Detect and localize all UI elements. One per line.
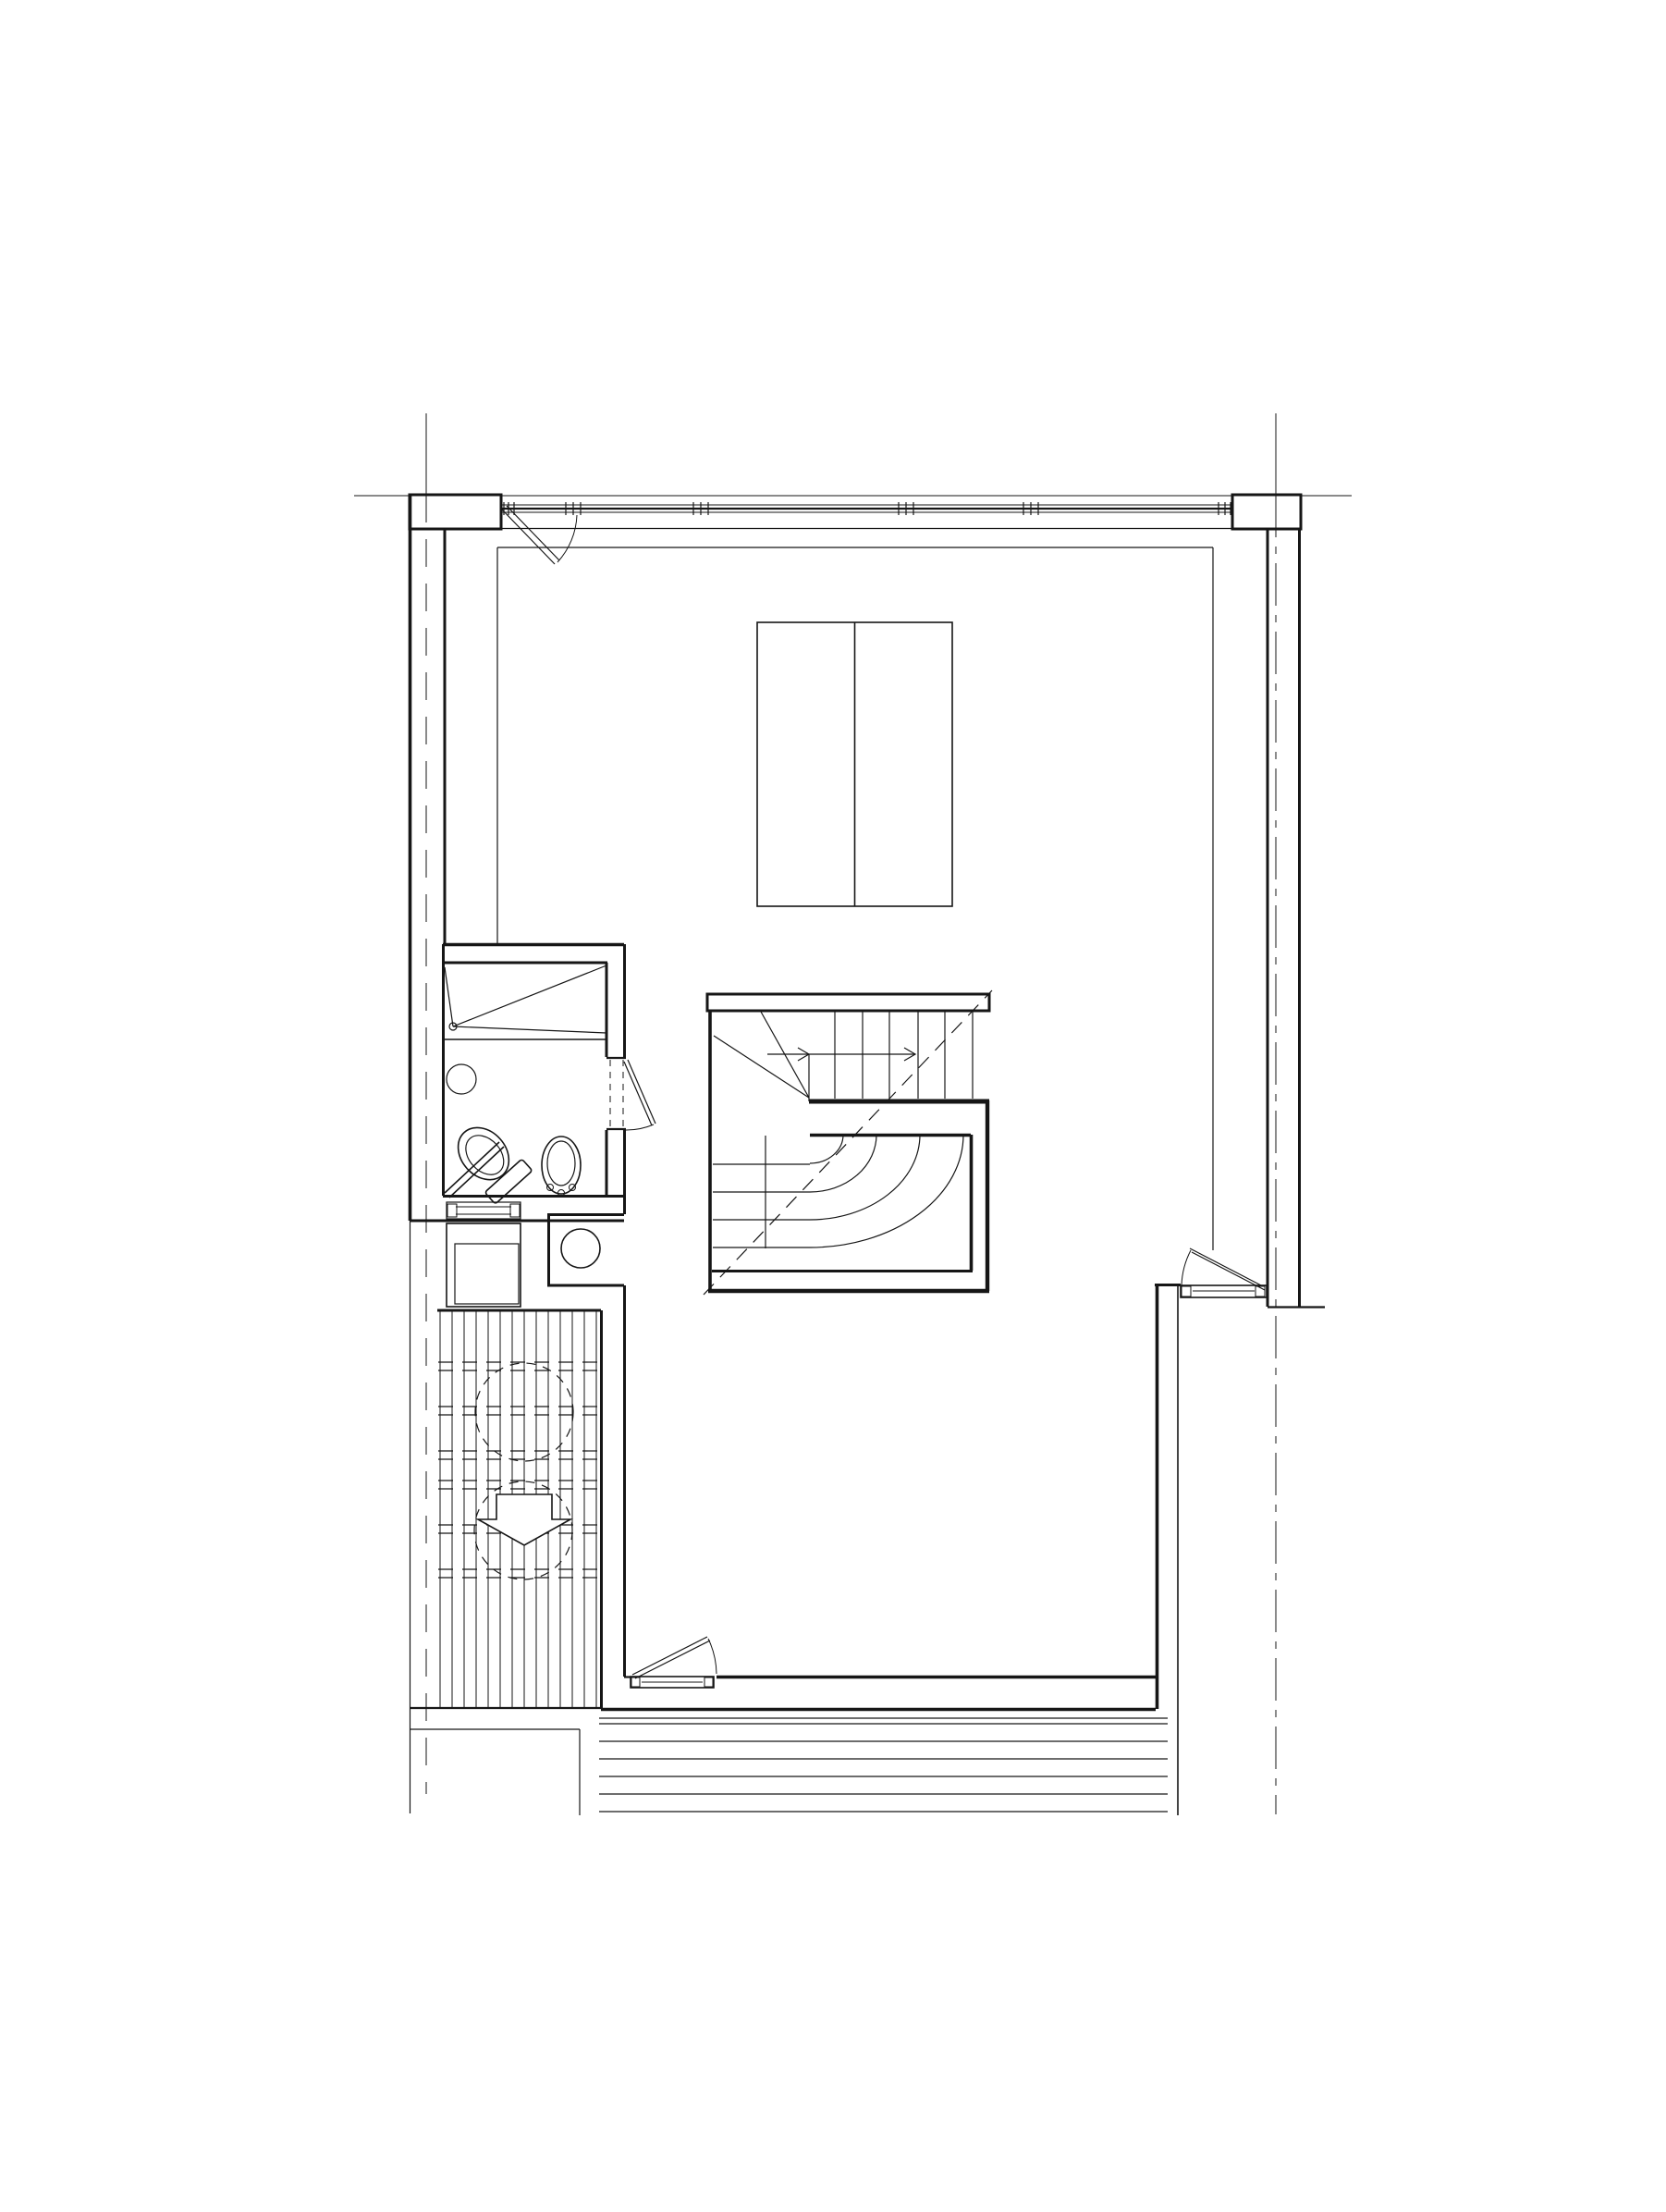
bathroom-door	[610, 1060, 655, 1130]
walls	[410, 495, 1325, 1815]
south-door	[631, 1637, 717, 1688]
stair-lower-treads	[713, 1136, 810, 1248]
utility-walls	[549, 1215, 625, 1286]
entry-door-swing-arc	[557, 515, 577, 562]
stair-winder-arcs	[810, 1135, 963, 1247]
cylinder-icon	[561, 1229, 600, 1268]
entry-door-leaf-b	[507, 506, 559, 560]
deck	[438, 1311, 599, 1707]
stair-upper-treads	[809, 1011, 973, 1101]
deck-dashed-rows	[438, 1362, 599, 1578]
corner-column-nw	[410, 495, 501, 529]
window-band	[410, 495, 1301, 547]
wardrobe	[757, 622, 952, 906]
floor-plan-drawing	[0, 0, 1666, 2212]
appliance-square	[447, 1223, 521, 1307]
stair-top-landing-wall	[707, 994, 989, 1011]
walkway-edge	[410, 1729, 580, 1815]
corner-column-ne	[1232, 495, 1301, 529]
staircase	[704, 990, 992, 1295]
wc-bar-a	[449, 1147, 504, 1198]
bath-threshold	[447, 1202, 521, 1219]
grid-reference-lines	[354, 413, 1352, 1814]
down-arrow-icon	[478, 1494, 570, 1545]
entry-door-leaf-a	[502, 510, 555, 564]
utility-recess	[549, 1215, 625, 1286]
floor-drain-icon	[447, 1064, 476, 1094]
external-steps	[599, 1718, 1168, 1812]
wc-bar-b	[445, 1142, 499, 1193]
floor-plan-sheet	[0, 0, 1666, 2212]
east-door	[1181, 1248, 1267, 1297]
basin-icon	[542, 1137, 581, 1197]
stair-walk-line	[767, 1048, 915, 1061]
stair-direction-dashed	[704, 990, 992, 1295]
shower-area	[444, 965, 606, 1039]
